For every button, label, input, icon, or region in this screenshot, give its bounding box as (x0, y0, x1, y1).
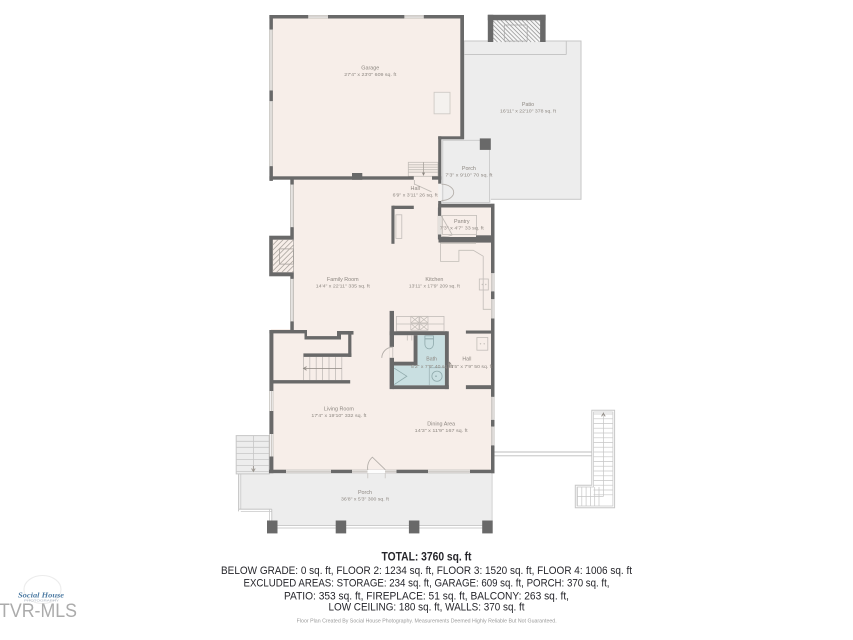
svg-text:Hall: Hall (411, 186, 420, 192)
svg-text:Kitchen: Kitchen (425, 277, 443, 283)
svg-text:Garage: Garage (361, 66, 379, 72)
svg-text:6'9" x 3'11" 26 sq. ft: 6'9" x 3'11" 26 sq. ft (393, 193, 439, 199)
svg-text:16'11" x 22'10" 378 sq. ft: 16'11" x 22'10" 378 sq. ft (500, 108, 557, 114)
svg-text:36'8" x 5'3" 300 sq. ft: 36'8" x 5'3" 300 sq. ft (341, 496, 390, 502)
svg-text:Floor Plan Created By Social H: Floor Plan Created By Social House Photo… (297, 619, 557, 625)
svg-text:6'5" x 7'9" 50 sq. ft: 6'5" x 7'9" 50 sq. ft (451, 364, 494, 370)
svg-text:LOW CEILING: 180 sq. ft, WALLS: LOW CEILING: 180 sq. ft, WALLS: 370 sq. … (329, 602, 525, 614)
svg-text:PATIO: 353 sq. ft, FIREPLACE:: PATIO: 353 sq. ft, FIREPLACE: 51 sq. ft,… (284, 590, 569, 602)
svg-text:7'3" x 9'10" 70 sq. ft: 7'3" x 9'10" 70 sq. ft (445, 172, 493, 178)
svg-text:Porch: Porch (358, 490, 372, 496)
svg-text:14'4" x 22'11" 335 sq. ft: 14'4" x 22'11" 335 sq. ft (316, 284, 371, 290)
svg-text:EXCLUDED AREAS: STORAGE: 234 s: EXCLUDED AREAS: STORAGE: 234 sq. ft, GAR… (244, 578, 610, 590)
svg-text:Porch: Porch (462, 166, 476, 172)
svg-text:14'3" x 11'9" 167 sq. ft: 14'3" x 11'9" 167 sq. ft (415, 428, 469, 434)
svg-text:Family Room: Family Room (327, 277, 359, 283)
svg-text:27'4" x 23'0" 609 sq. ft: 27'4" x 23'0" 609 sq. ft (344, 72, 397, 78)
svg-text:13'11" x 17'9" 209 sq. ft: 13'11" x 17'9" 209 sq. ft (409, 284, 461, 290)
svg-text:Pantry: Pantry (454, 219, 470, 225)
svg-text:7'3" x 4'7" 33 sq. ft: 7'3" x 4'7" 33 sq. ft (440, 226, 485, 231)
svg-text:TOTAL: 3760 sq. ft: TOTAL: 3760 sq. ft (382, 552, 472, 564)
svg-text:Patio: Patio (522, 102, 534, 108)
svg-text:5'2" x 7'9" 40 sq. ft: 5'2" x 7'9" 40 sq. ft (411, 364, 454, 370)
svg-text:Hall: Hall (462, 356, 471, 362)
svg-text:Bath: Bath (426, 356, 437, 362)
svg-text:BELOW GRADE: 0 sq. ft, FLOOR 2: BELOW GRADE: 0 sq. ft, FLOOR 2: 1234 sq.… (221, 565, 632, 577)
svg-text:Living Room: Living Room (324, 407, 354, 413)
svg-text:Dining Area: Dining Area (427, 422, 455, 428)
svg-text:17'4" x 19'10" 332 sq. ft: 17'4" x 19'10" 332 sq. ft (311, 413, 367, 419)
svg-text:TVR-MLS: TVR-MLS (0, 601, 77, 622)
